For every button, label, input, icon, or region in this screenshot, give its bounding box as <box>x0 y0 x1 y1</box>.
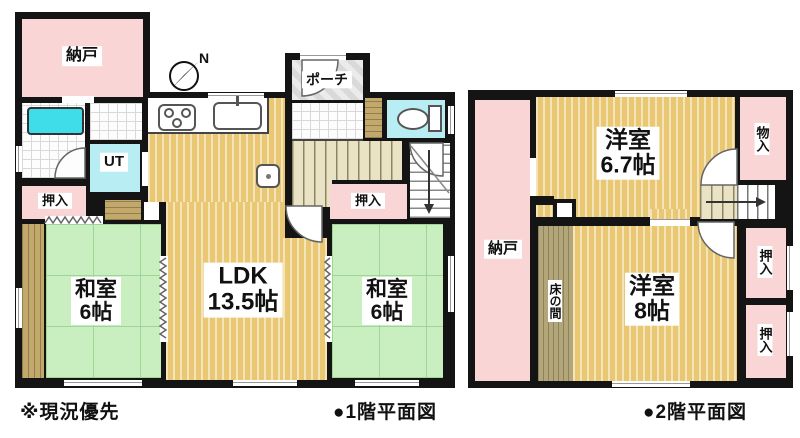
compass-north-icon: N <box>163 46 215 98</box>
stairs-right-arrowhead <box>756 197 766 207</box>
caption-floor1: ●1階平面図 <box>333 397 437 424</box>
door-arc-ldk <box>286 206 322 242</box>
label-f1-storage: 納戸 <box>62 46 102 66</box>
door-arc-f2-room67 <box>701 149 737 185</box>
room-size: 6帖 <box>75 301 117 324</box>
stairs-down-arrowhead <box>424 204 434 214</box>
room-name: 和室 <box>366 278 408 301</box>
label-f1-closet-right: 押入 <box>351 193 385 209</box>
label-f2-storage: 納戸 <box>484 240 522 259</box>
kitchen-sink-icon <box>213 102 262 130</box>
zigzag-fusuma-2 <box>160 258 166 338</box>
room-name: LDK <box>208 264 279 290</box>
room-name: 洋室 <box>601 128 656 153</box>
label-f1-ldk: LDK 13.5帖 <box>204 263 283 318</box>
room-size: 6帖 <box>366 301 408 324</box>
label-f1-utility: UT <box>100 153 128 172</box>
door-arc-bathroom <box>55 148 85 178</box>
svg-text:N: N <box>199 50 209 66</box>
label-f1-japanese-room-left: 和室 6帖 <box>71 277 121 325</box>
room-size: 8帖 <box>629 299 675 324</box>
note-current-condition: ※現況優先 <box>20 397 119 424</box>
label-f2-closet-lower: 押入 <box>758 324 773 356</box>
floor-plan-canvas: N 納戸 ポーチ UT 押入 和室 6帖 LDK 13.5帖 押入 和室 6帖 … <box>0 0 800 438</box>
caption-floor2: ●2階平面図 <box>643 397 747 424</box>
label-f2-western-room-67: 洋室 6.7帖 <box>597 127 660 180</box>
label-f2-western-room-8: 洋室 8帖 <box>625 273 679 326</box>
zigzag-fusuma-3 <box>325 258 330 338</box>
label-f2-storage-upper-right: 物入 <box>755 123 770 155</box>
room-name: 洋室 <box>629 274 675 299</box>
room-name: 和室 <box>75 278 117 301</box>
washbasin-drain <box>266 174 271 179</box>
label-f2-closet-upper: 押入 <box>758 246 773 278</box>
faucet-icon <box>236 96 239 106</box>
stove-icon <box>158 104 196 131</box>
label-f2-tokonoma: 床の間 <box>548 280 562 322</box>
toilet-bowl-icon <box>397 108 429 130</box>
door-arc-f2-room8 <box>698 222 734 258</box>
zigzag-fusuma-1 <box>45 217 101 223</box>
door-arc-toilet <box>410 143 443 176</box>
room-size: 13.5帖 <box>208 290 279 316</box>
plan-symbols-overlay <box>0 0 800 438</box>
room-size: 6.7帖 <box>601 153 656 178</box>
label-f1-porch: ポーチ <box>302 71 352 88</box>
label-f1-japanese-room-right: 和室 6帖 <box>362 277 412 325</box>
label-f1-closet-left: 押入 <box>38 193 72 209</box>
toilet-tank-icon <box>428 105 442 132</box>
